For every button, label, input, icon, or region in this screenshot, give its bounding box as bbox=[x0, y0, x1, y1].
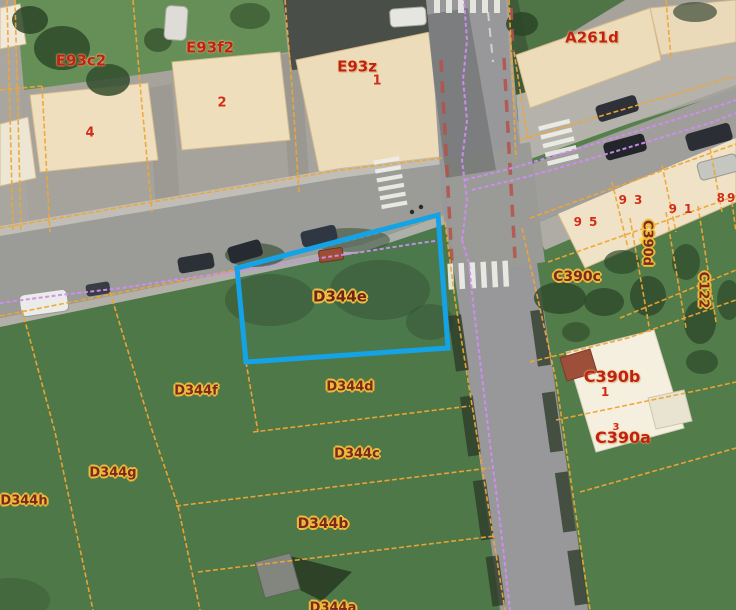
map-viewport[interactable]: E93c24E93f22E93z1A261d95939189C390dC390c… bbox=[0, 0, 736, 610]
building-house-2 bbox=[172, 52, 290, 150]
boundary-vertex-dot bbox=[639, 237, 645, 243]
aerial-basemap bbox=[0, 0, 736, 610]
building-house-4 bbox=[30, 83, 158, 172]
white-car bbox=[164, 5, 188, 40]
white-van bbox=[389, 7, 426, 27]
